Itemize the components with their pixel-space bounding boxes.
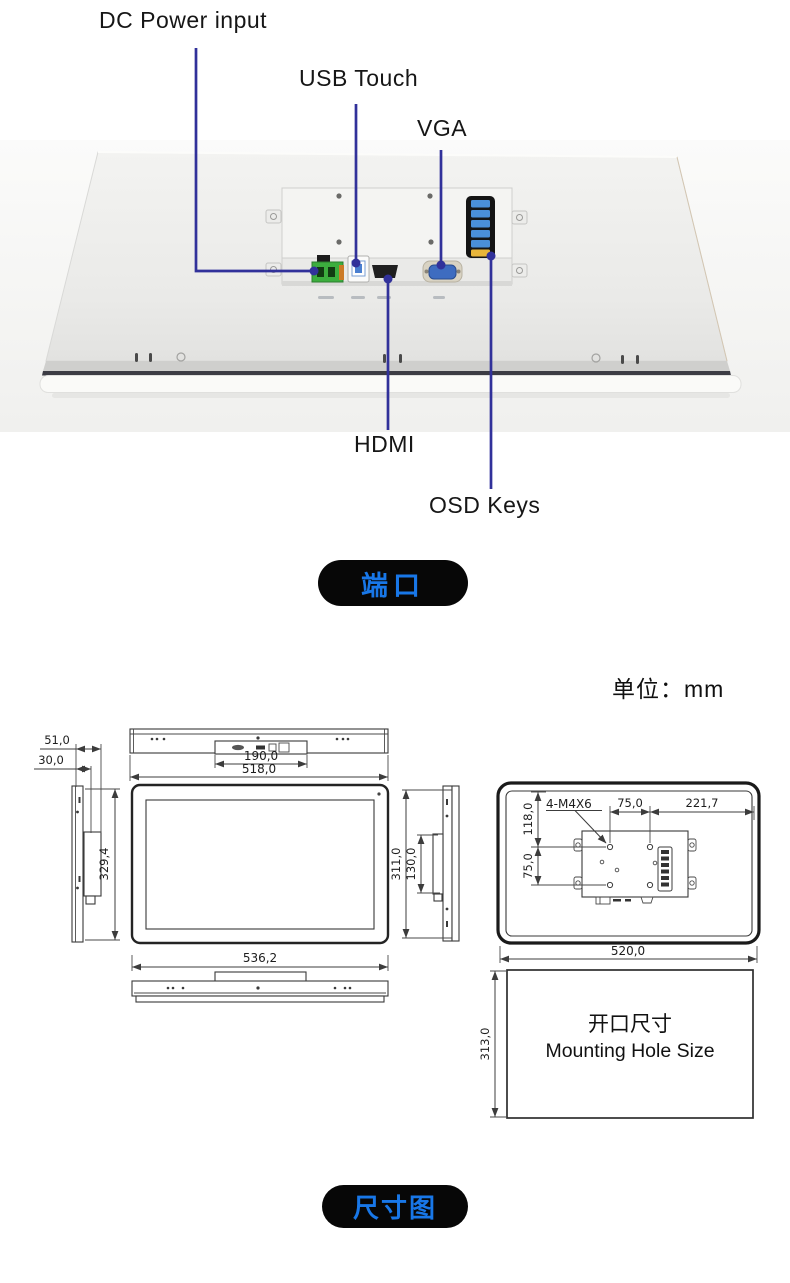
ports-photo [0, 0, 790, 620]
label-hdmi: HDMI [354, 431, 415, 458]
screen-edge-line [42, 371, 731, 376]
label-osd-keys: OSD Keys [429, 492, 540, 519]
front-bezel-lip [40, 376, 741, 393]
dim-height-right: 311,0 [389, 848, 403, 881]
ports-badge: 端口 [318, 560, 468, 606]
dim-rear-width: 520,0 [611, 944, 645, 958]
label-usb-touch: USB Touch [299, 65, 418, 92]
bottom-view: 536,2 [132, 951, 388, 1002]
dim-hole-dx: 75,0 [617, 796, 643, 810]
dim-hole-top-offset: 118,0 [521, 803, 535, 836]
label-vga: VGA [417, 115, 467, 142]
dim-connector-width: 190,0 [244, 749, 278, 763]
unit-label: 单位：mm [612, 670, 724, 704]
dim-top-width: 518,0 [242, 762, 276, 776]
dim-front-width: 536,2 [243, 951, 277, 965]
rear-view: 118,0 75,0 4-M4X6 75,0 221,7 520,0 [498, 783, 759, 963]
dimension-drawings: 51,0 30,0 329,4 [0, 720, 790, 1170]
dim-hole-dy: 75,0 [521, 853, 535, 879]
dim-depth-total: 51,0 [44, 733, 70, 747]
cutout-title-cn: 开口尺寸 [588, 1013, 672, 1036]
side-view-left: 51,0 30,0 329,4 [34, 733, 120, 942]
top-view: 190,0 518,0 [130, 729, 388, 781]
dim-right-offset: 221,7 [686, 796, 719, 810]
bottom-rim [43, 361, 730, 371]
side-view-right: 311,0 130,0 [389, 786, 459, 941]
dim-depth-front: 30,0 [38, 753, 64, 767]
dimensions-badge: 尺寸图 [322, 1185, 468, 1228]
product-spec-page: DC Power input USB Touch VGA HDMI OSD Ke… [0, 0, 790, 1283]
cutout-title-en: Mounting Hole Size [545, 1040, 714, 1062]
dim-height-left: 329,4 [97, 848, 111, 881]
monitor-back [40, 152, 741, 398]
osd-keypad-icon [466, 196, 495, 258]
dim-plate-height: 130,0 [404, 848, 418, 881]
label-dc-power: DC Power input [99, 7, 267, 34]
dim-cutout-height: 313,0 [478, 1028, 492, 1061]
ground-shadow [52, 393, 730, 398]
cutout-view: 313,0 开口尺寸 Mounting Hole Size [478, 970, 753, 1118]
dim-screw-label: 4-M4X6 [546, 797, 592, 811]
front-view [132, 785, 388, 943]
